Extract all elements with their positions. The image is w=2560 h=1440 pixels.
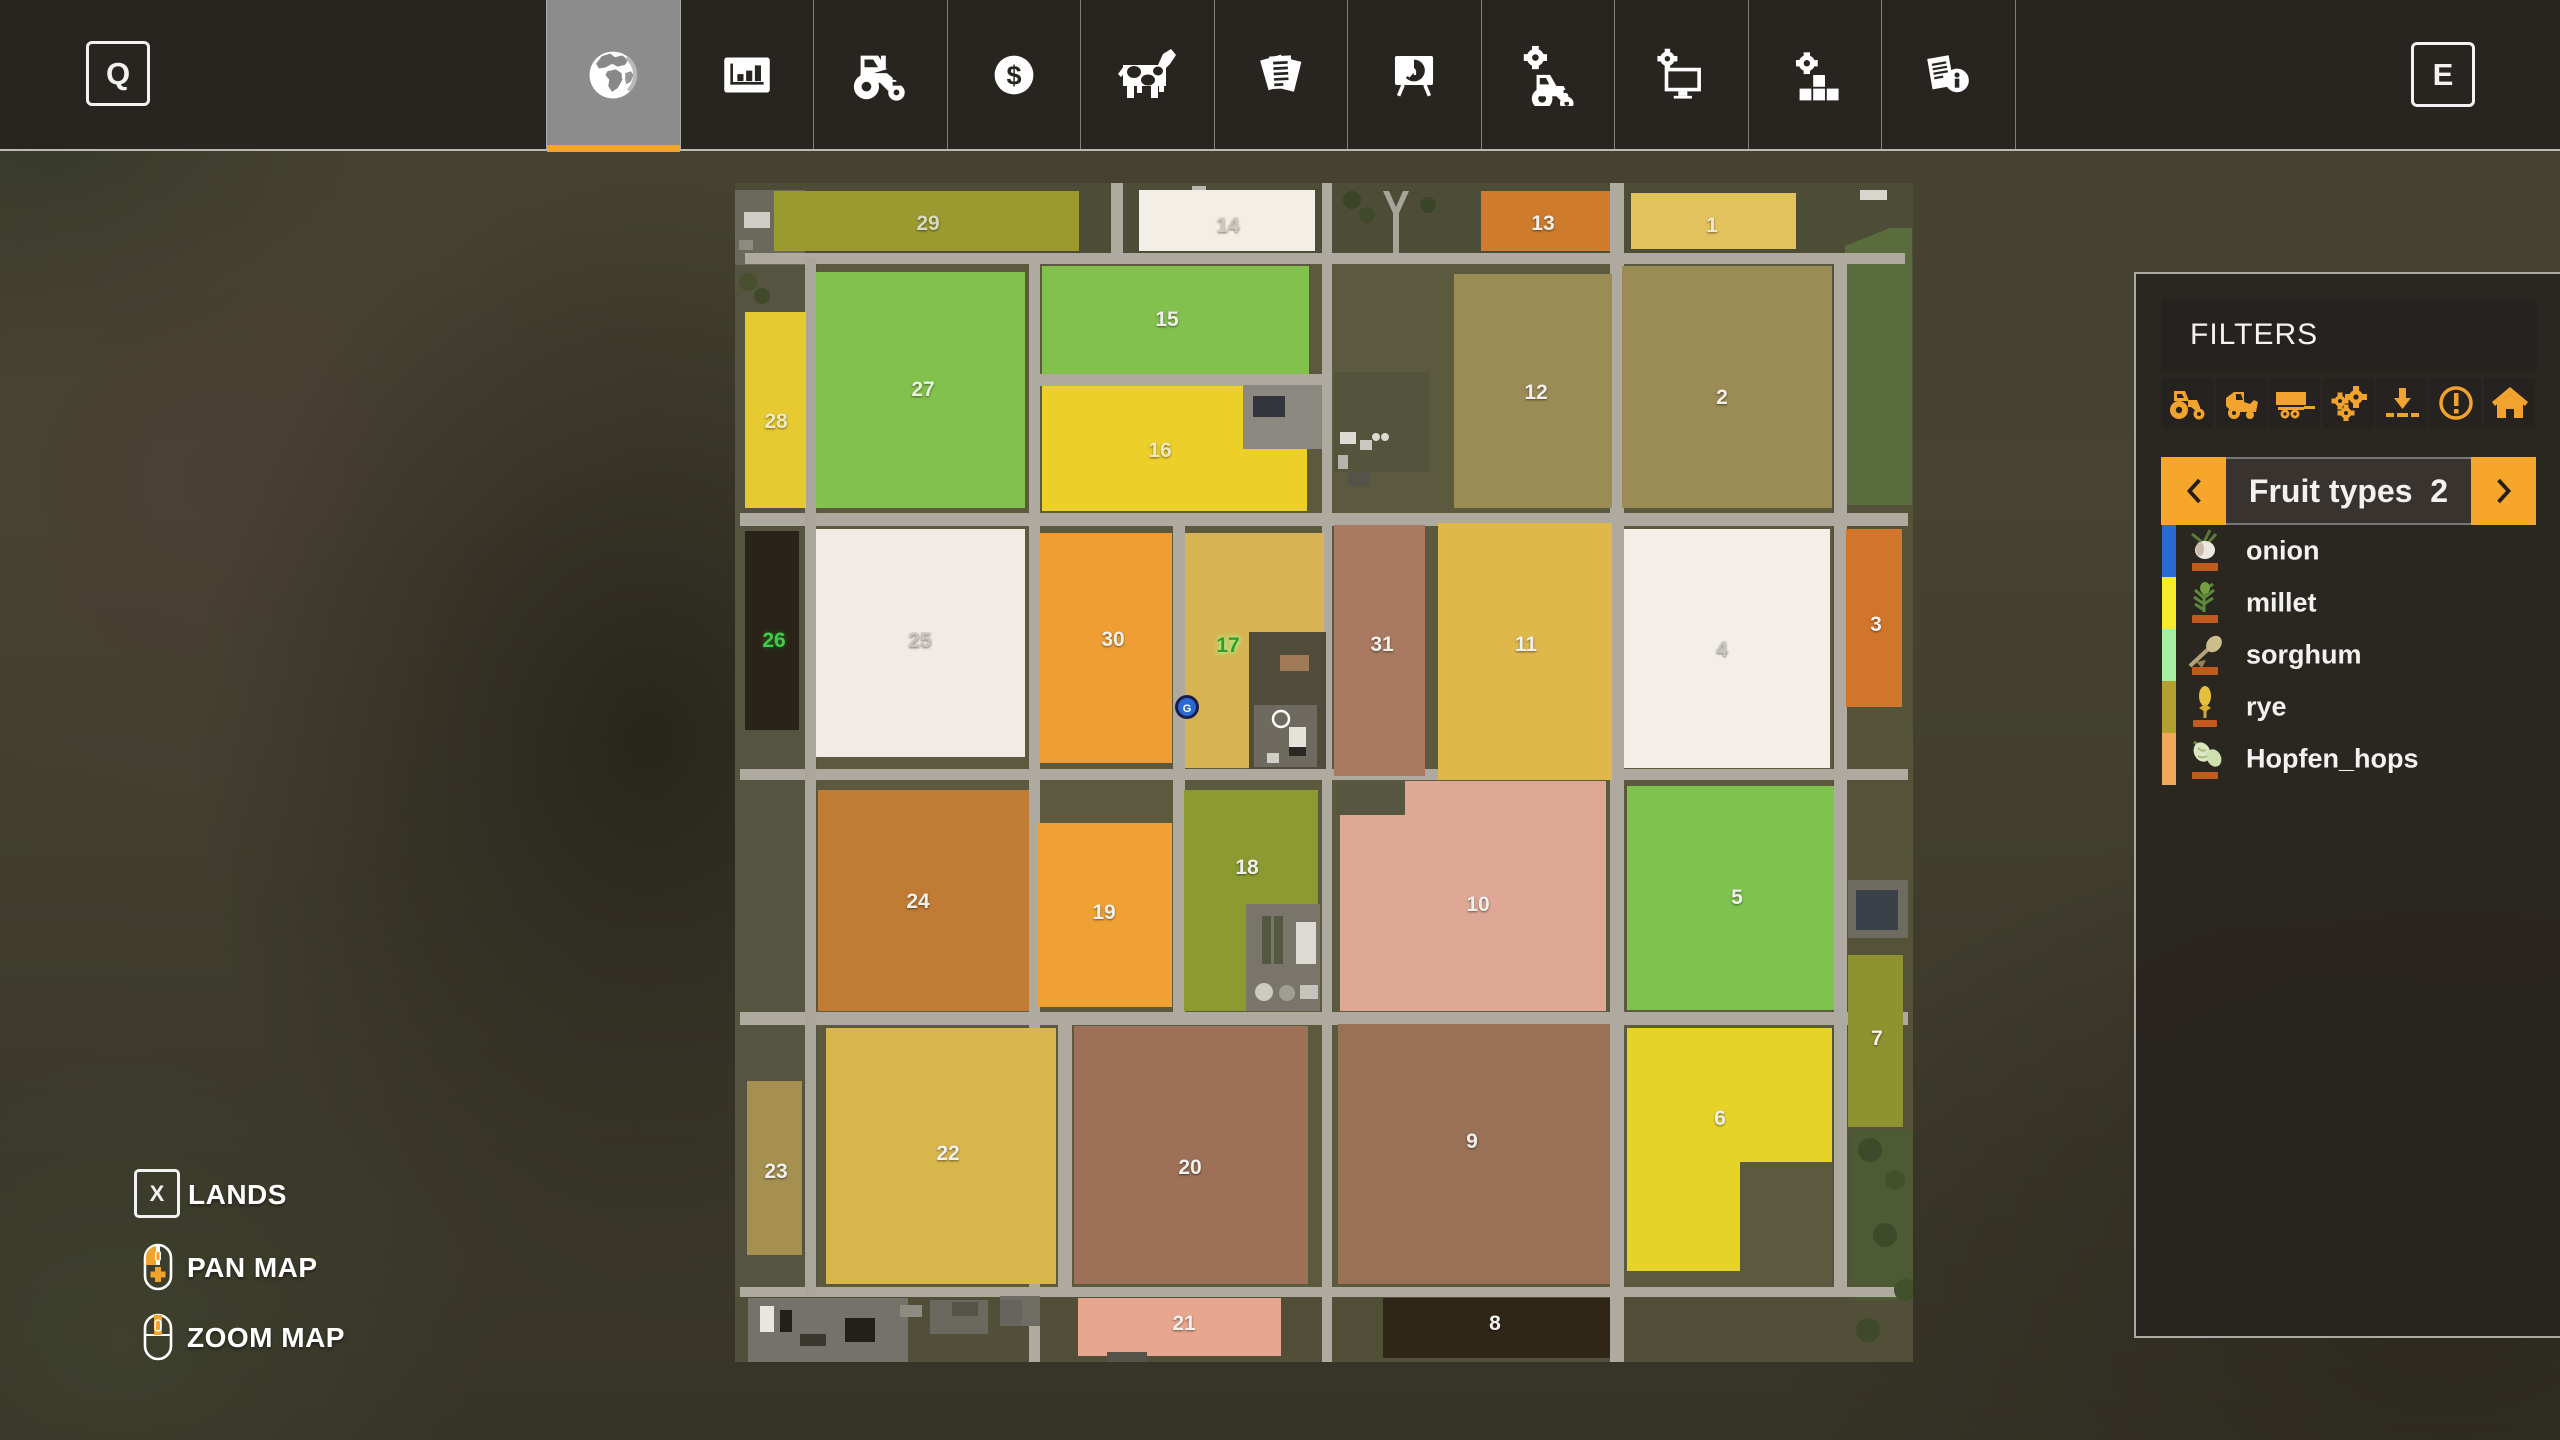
svg-text:G: G [1183,703,1192,715]
svg-text:11: 11 [1515,633,1538,656]
svg-text:23: 23 [764,1160,787,1183]
svg-text:15: 15 [1155,308,1179,331]
svg-text:2: 2 [1716,386,1728,409]
svg-text:26: 26 [762,629,785,652]
svg-text:24: 24 [906,890,930,913]
svg-text:7: 7 [1871,1027,1883,1050]
svg-text:10: 10 [1466,893,1489,916]
svg-text:29: 29 [916,212,939,235]
svg-text:22: 22 [936,1142,959,1165]
svg-text:4: 4 [1716,638,1728,661]
svg-text:5: 5 [1731,886,1743,909]
svg-text:30: 30 [1101,628,1124,651]
svg-text:8: 8 [1489,1312,1501,1335]
svg-text:31: 31 [1370,633,1394,656]
svg-text:19: 19 [1092,901,1115,924]
svg-text:18: 18 [1235,856,1259,879]
svg-text:14: 14 [1216,214,1240,237]
svg-text:1: 1 [1706,214,1718,237]
svg-text:6: 6 [1714,1107,1726,1130]
svg-text:9: 9 [1466,1130,1478,1153]
svg-text:$: $ [1006,60,1021,90]
svg-text:25: 25 [908,629,932,652]
svg-text:28: 28 [764,410,788,433]
svg-text:16: 16 [1148,439,1171,462]
svg-text:20: 20 [1178,1156,1201,1179]
svg-text:3: 3 [1870,613,1882,636]
svg-text:27: 27 [911,378,934,401]
svg-text:12: 12 [1524,381,1547,404]
svg-text:17: 17 [1216,634,1239,657]
svg-text:21: 21 [1172,1312,1196,1335]
svg-text:13: 13 [1531,212,1554,235]
